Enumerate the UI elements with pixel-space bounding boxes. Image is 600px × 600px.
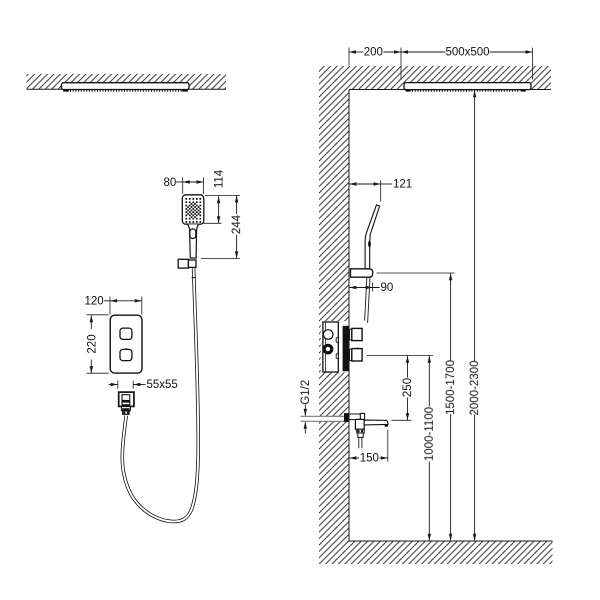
- svg-text:1500-1700: 1500-1700: [445, 360, 457, 415]
- svg-text:500x500: 500x500: [445, 47, 489, 59]
- svg-text:114: 114: [214, 169, 226, 188]
- svg-text:150: 150: [360, 453, 379, 465]
- svg-text:55x55: 55x55: [147, 379, 178, 391]
- svg-text:80: 80: [164, 177, 177, 189]
- svg-text:90: 90: [381, 282, 394, 294]
- svg-text:200: 200: [364, 47, 383, 59]
- svg-text:121: 121: [393, 179, 412, 191]
- svg-text:G1/2: G1/2: [300, 380, 312, 405]
- svg-text:2000-2300: 2000-2300: [469, 360, 481, 415]
- svg-text:120: 120: [85, 296, 104, 308]
- svg-text:1000-1100: 1000-1100: [424, 407, 436, 461]
- svg-text:244: 244: [231, 214, 243, 234]
- svg-text:220: 220: [87, 334, 99, 353]
- svg-text:250: 250: [402, 378, 414, 397]
